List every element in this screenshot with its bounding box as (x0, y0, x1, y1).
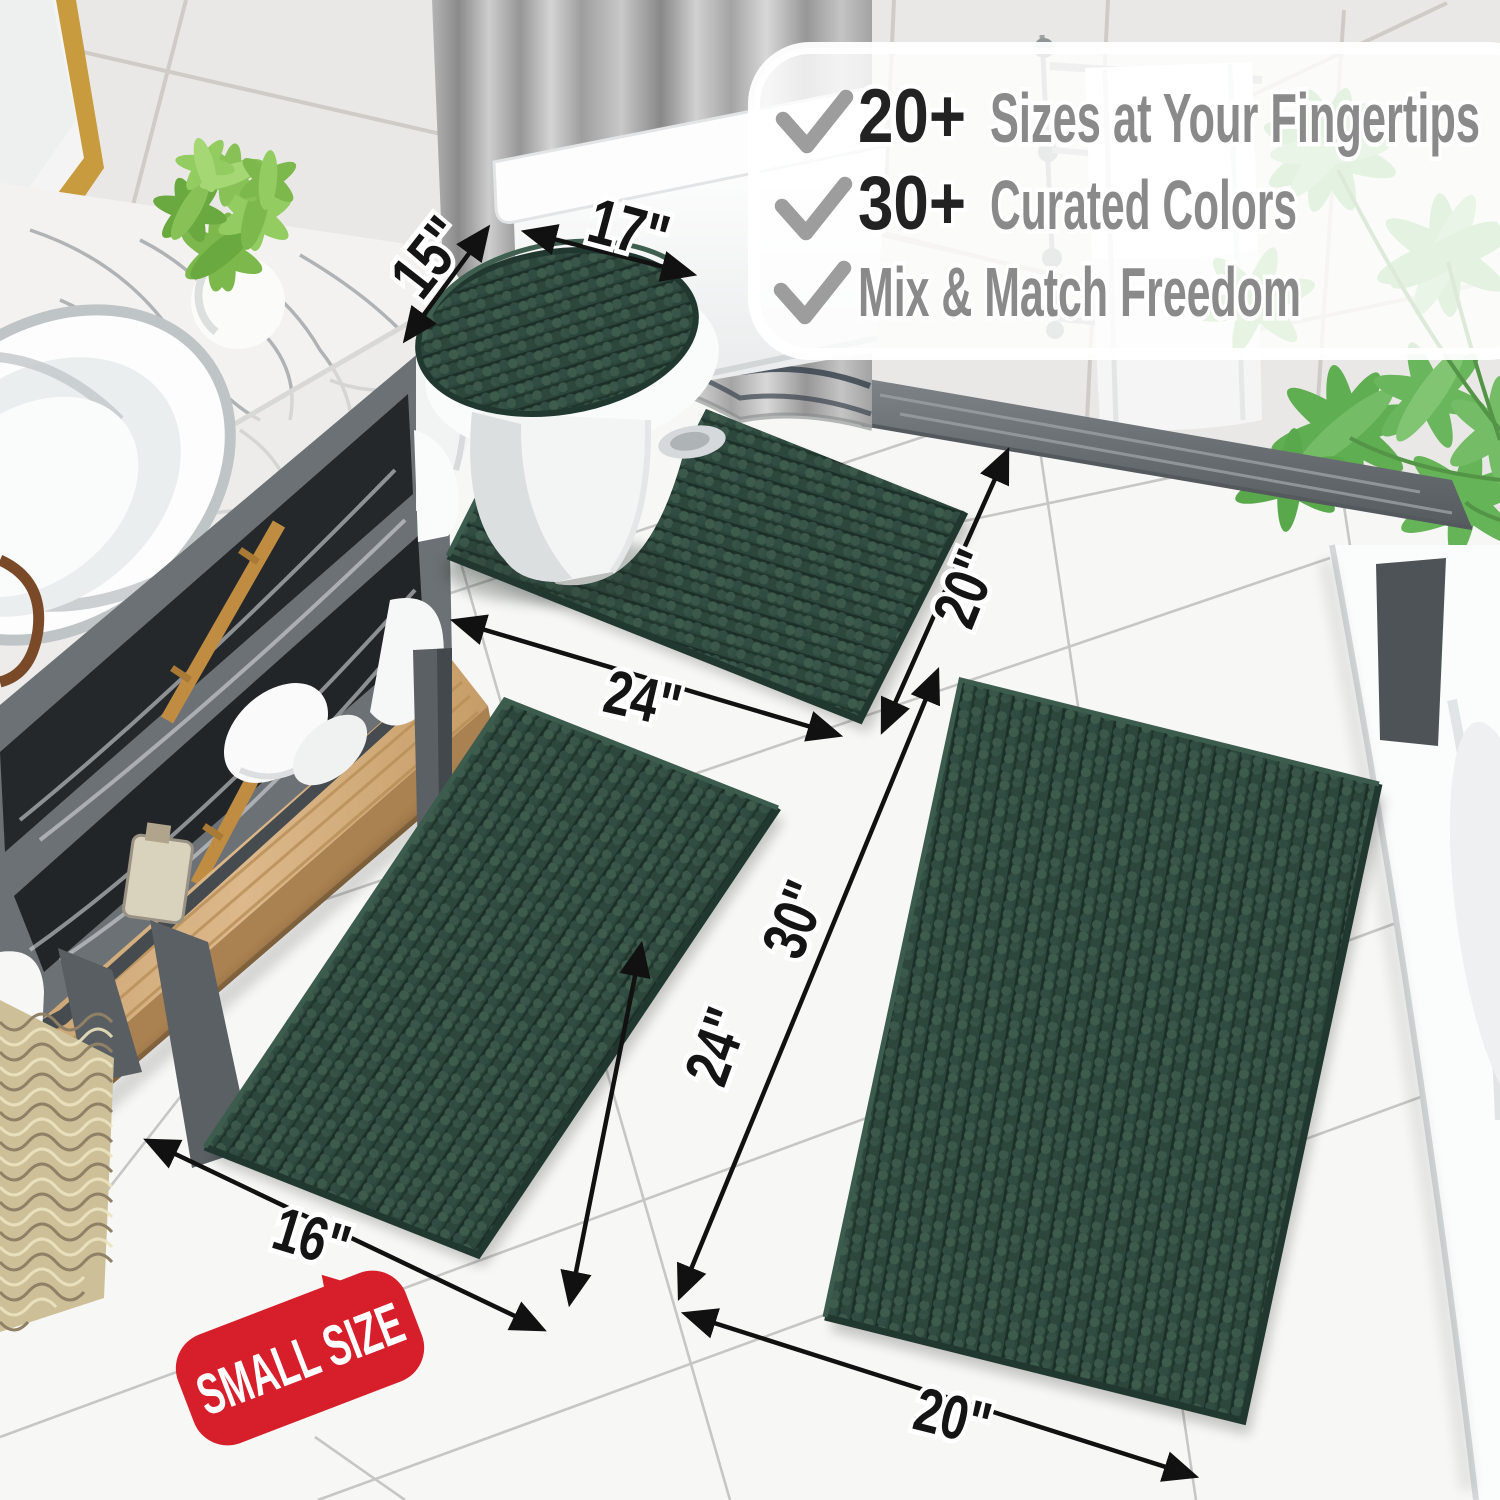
svg-text:20+: 20+ (858, 74, 966, 159)
svg-text:Curated Colors: Curated Colors (990, 166, 1297, 244)
svg-text:30+: 30+ (858, 161, 966, 246)
svg-text:Sizes at Your Fingertips: Sizes at Your Fingertips (990, 79, 1480, 157)
svg-text:Mix & Match Freedom: Mix & Match Freedom (858, 253, 1301, 331)
